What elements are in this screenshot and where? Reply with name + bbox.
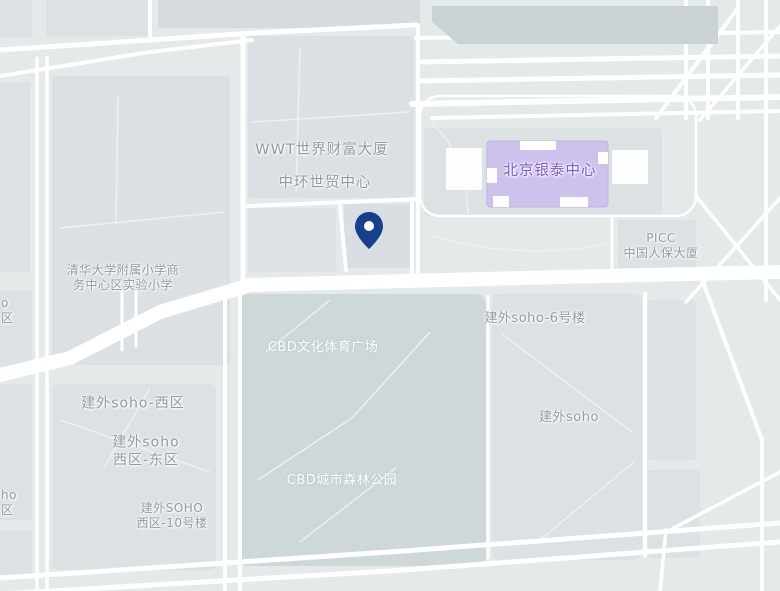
map-canvas[interactable]: WWT世界财富大厦 中环世贸中心 北京银泰中心 PICC 中国人保大厦 清华大学… bbox=[0, 0, 780, 591]
poi-label-jianwai-soho-west-east-line2: 西区-东区 bbox=[112, 452, 179, 470]
poi-label-school-line1: 清华大学附属小学商 bbox=[67, 263, 180, 278]
poi-label-jianwai-soho-west[interactable]: 建外soho-西区 bbox=[81, 395, 185, 413]
poi-label-clipped-upper-line1: o bbox=[1, 296, 14, 311]
poi-label-jianwai-soho-west-no10-line2: 西区-10号楼 bbox=[136, 516, 207, 531]
poi-label-clipped-upper-line2: 区 bbox=[1, 311, 14, 326]
poi-label-jianwai-soho-west-east[interactable]: 建外soho 西区-东区 bbox=[112, 435, 179, 470]
building-footprint-east bbox=[612, 150, 648, 184]
building-footprint-west bbox=[446, 148, 482, 190]
poi-label-jianwai-soho-west-east-line1: 建外soho bbox=[112, 435, 179, 453]
poi-label-school-line2: 务中心区实验小学 bbox=[67, 278, 180, 293]
poi-label-clipped-lower-line2: 区 bbox=[1, 503, 17, 518]
elevated-structure bbox=[432, 6, 718, 44]
map-graphics bbox=[0, 0, 780, 591]
poi-label-picc-line2: 中国人保大厦 bbox=[623, 246, 698, 261]
poi-label-clipped-lower-line1: ho bbox=[1, 488, 17, 503]
poi-label-jianwai-soho-no6[interactable]: 建外soho-6号楼 bbox=[484, 311, 585, 327]
poi-label-wwt-tower[interactable]: WWT世界财富大厦 bbox=[255, 141, 389, 159]
pin-hole bbox=[364, 221, 374, 231]
poi-label-jianwai-soho-west-no10-line1: 建外SOHO bbox=[136, 501, 207, 516]
poi-label-clipped-lower: ho 区 bbox=[1, 488, 17, 518]
poi-label-cbd-culture-sports-plaza[interactable]: CBD文化体育广场 bbox=[268, 340, 379, 356]
poi-label-cbd-urban-forest-park[interactable]: CBD城市森林公园 bbox=[287, 473, 398, 489]
poi-label-school[interactable]: 清华大学附属小学商 务中心区实验小学 bbox=[67, 263, 180, 293]
poi-label-jianwai-soho[interactable]: 建外soho bbox=[539, 410, 599, 426]
poi-label-jianwai-soho-west-no10[interactable]: 建外SOHO 西区-10号楼 bbox=[136, 501, 207, 531]
poi-label-central-world-trade[interactable]: 中环世贸中心 bbox=[279, 174, 372, 192]
poi-label-clipped-upper: o 区 bbox=[1, 296, 14, 326]
poi-label-yintai-centre[interactable]: 北京银泰中心 bbox=[504, 162, 597, 180]
poi-label-picc-line1: PICC bbox=[623, 231, 698, 246]
poi-label-picc[interactable]: PICC 中国人保大厦 bbox=[623, 231, 698, 261]
